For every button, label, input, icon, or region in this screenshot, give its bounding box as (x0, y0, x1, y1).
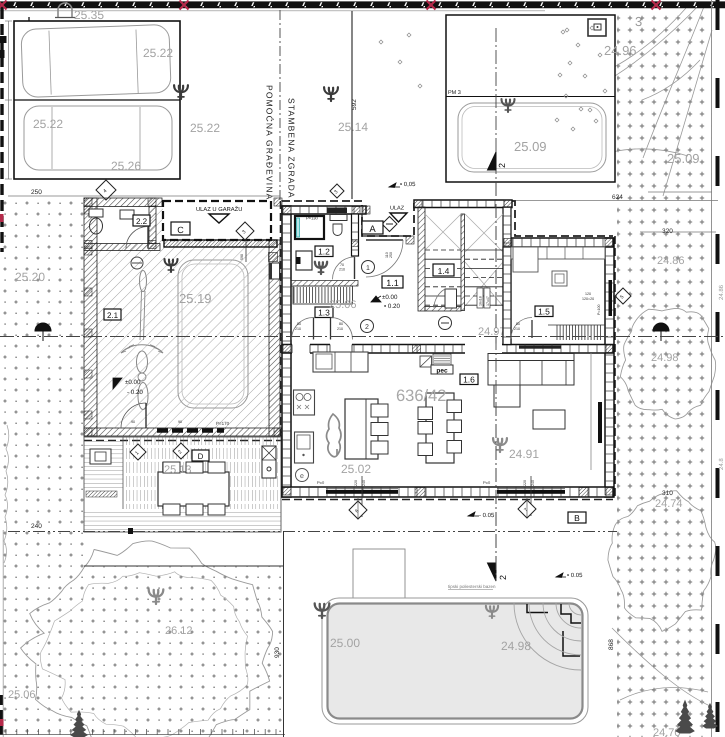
svg-text:592: 592 (351, 99, 358, 110)
svg-text:90: 90 (178, 420, 182, 424)
svg-text:25.09: 25.09 (514, 139, 547, 154)
svg-text:25.13: 25.13 (164, 464, 192, 476)
svg-text:ULAZ U GARAŽU: ULAZ U GARAŽU (196, 205, 242, 213)
svg-text:26.12: 26.12 (165, 625, 193, 637)
svg-text:1: 1 (366, 265, 370, 272)
svg-text:210: 210 (337, 327, 343, 331)
svg-text:25.02: 25.02 (341, 462, 371, 476)
svg-text:1.6: 1.6 (463, 374, 475, 384)
svg-text:930: 930 (274, 647, 281, 658)
svg-text:- 0.20: - 0.20 (127, 389, 143, 396)
svg-text:24.91: 24.91 (509, 447, 539, 461)
svg-text:1.1: 1.1 (386, 278, 399, 288)
svg-text:POMOĆNA GRAĐEVINA: POMOĆNA GRAĐEVINA (265, 85, 275, 200)
svg-text:25.06: 25.06 (329, 299, 357, 311)
svg-text:2.2: 2.2 (136, 217, 148, 226)
svg-text:25.14: 25.14 (338, 120, 368, 134)
svg-text:17x47: 17x47 (486, 296, 490, 306)
svg-text:220: 220 (354, 480, 358, 486)
svg-text:24.74: 24.74 (655, 498, 683, 510)
svg-text:3: 3 (635, 14, 642, 29)
svg-text:±0.00: ±0.00 (382, 294, 398, 301)
svg-text:90: 90 (131, 420, 135, 424)
svg-text:80: 80 (297, 322, 301, 326)
svg-text:25.22: 25.22 (190, 121, 220, 135)
svg-text:STAMBENA ZGRADA: STAMBENA ZGRADA (287, 98, 297, 199)
svg-text:• 0,05: • 0,05 (400, 181, 416, 188)
svg-text:240: 240 (362, 480, 366, 486)
svg-text:25.06: 25.06 (8, 689, 36, 701)
svg-text:1.2: 1.2 (318, 246, 330, 256)
svg-text:tipski poliesterski bazen: tipski poliesterski bazen (448, 584, 496, 589)
svg-text:2: 2 (498, 575, 508, 580)
svg-text:310: 310 (662, 490, 673, 497)
svg-text:24.86: 24.86 (657, 255, 685, 267)
svg-text:D: D (198, 452, 204, 461)
svg-text:±0.00: ±0.00 (125, 379, 141, 386)
svg-text:220: 220 (523, 480, 527, 486)
svg-text:868: 868 (608, 639, 615, 650)
svg-text:- 0.05: - 0.05 (479, 512, 495, 519)
svg-text:250: 250 (31, 189, 42, 196)
svg-text:80: 80 (516, 322, 520, 326)
svg-text:240: 240 (31, 523, 42, 530)
svg-text:P=0: P=0 (317, 480, 325, 485)
svg-text:1.5: 1.5 (538, 306, 550, 316)
svg-text:24.98: 24.98 (501, 639, 531, 653)
svg-text:PM 3: PM 3 (448, 90, 461, 96)
svg-text:25.00: 25.00 (330, 636, 360, 650)
svg-text:ULAZ: ULAZ (390, 206, 405, 212)
svg-text:P=100: P=100 (597, 305, 601, 316)
svg-text:P=170: P=170 (216, 421, 230, 426)
svg-text:C: C (177, 225, 184, 235)
svg-text:210: 210 (339, 268, 345, 272)
svg-text:240: 240 (531, 480, 535, 486)
svg-text:80: 80 (339, 322, 343, 326)
svg-text:24.70: 24.70 (653, 727, 681, 737)
svg-text:320: 320 (662, 228, 673, 235)
svg-text:636/42: 636/42 (396, 387, 446, 405)
svg-text:25.20: 25.20 (15, 270, 45, 284)
svg-text:pec: pec (436, 368, 448, 375)
svg-text:25.19: 25.19 (179, 291, 212, 306)
svg-text:1.4: 1.4 (438, 266, 450, 276)
svg-text:• 0.20: • 0.20 (384, 303, 400, 310)
svg-text:P=130: P=130 (306, 216, 318, 221)
svg-text:120: 120 (585, 292, 591, 296)
svg-text:24.86: 24.86 (718, 284, 725, 300)
svg-text:25.09: 25.09 (667, 151, 700, 166)
svg-text:2: 2 (365, 324, 369, 331)
svg-text:598: 598 (240, 254, 244, 260)
svg-text:24.98: 24.98 (651, 352, 679, 364)
svg-text:2.1: 2.1 (107, 311, 119, 320)
svg-text:• 0.05: • 0.05 (567, 572, 583, 579)
svg-text:16x18: 16x18 (479, 296, 483, 306)
svg-text:250: 250 (389, 252, 393, 258)
svg-text:P=0: P=0 (483, 480, 491, 485)
svg-text:70: 70 (340, 263, 344, 267)
svg-text:B: B (574, 513, 580, 523)
svg-text:210: 210 (295, 327, 301, 331)
svg-text:A: A (369, 224, 376, 235)
svg-text:2: 2 (497, 163, 507, 168)
svg-text:120=20: 120=20 (582, 297, 594, 301)
svg-text:624: 624 (612, 194, 623, 201)
svg-text:24.96: 24.96 (604, 43, 637, 58)
svg-text:24.8: 24.8 (718, 458, 725, 470)
svg-text:25.22: 25.22 (143, 46, 173, 60)
svg-text:210: 210 (514, 327, 520, 331)
svg-text:25.35: 25.35 (74, 8, 104, 22)
svg-text:25.26: 25.26 (111, 159, 141, 173)
svg-text:e: e (300, 473, 304, 480)
svg-text:25.22: 25.22 (33, 117, 63, 131)
